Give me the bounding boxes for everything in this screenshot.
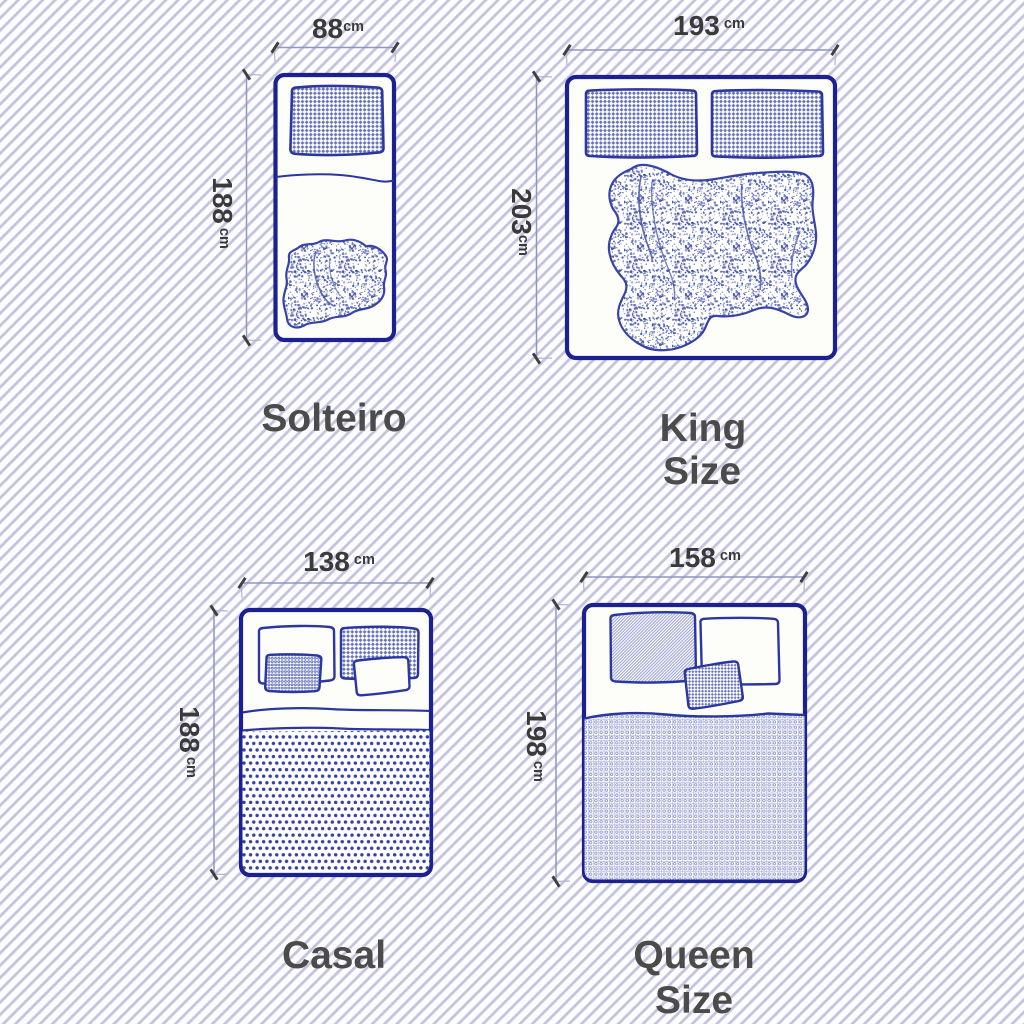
svg-text:Size: Size: [663, 450, 741, 493]
svg-text:Queen: Queen: [633, 934, 754, 977]
svg-text:Size: Size: [655, 979, 733, 1022]
svg-text:Casal: Casal: [282, 934, 386, 977]
svg-text:Solteiro: Solteiro: [261, 397, 406, 440]
svg-text:King: King: [660, 407, 747, 450]
